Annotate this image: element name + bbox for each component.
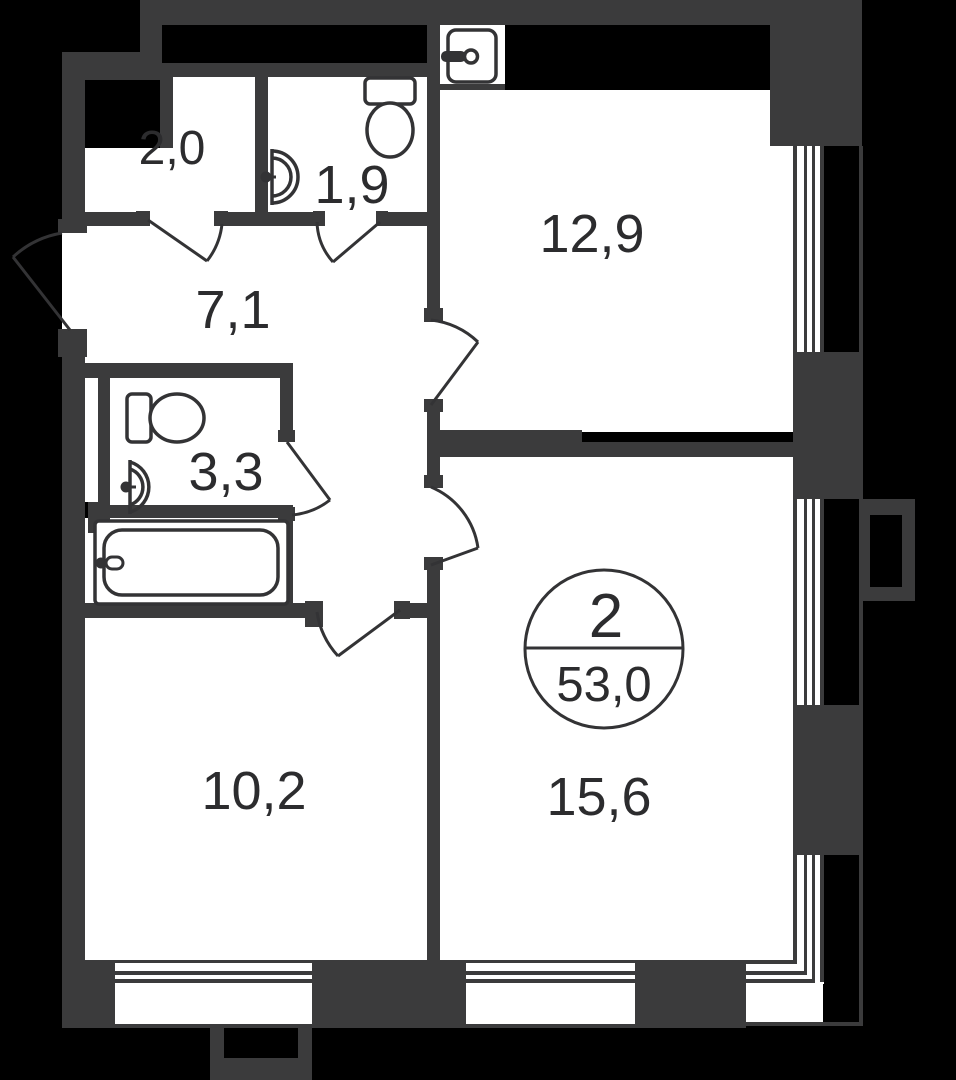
label-kitchen-area: 12,9 — [539, 204, 644, 264]
label-bedroom-area: 10,2 — [201, 761, 306, 821]
area-badge: 2 53,0 — [525, 570, 683, 728]
label-wardrobe-area: 2,0 — [139, 122, 206, 175]
badge-total-area: 53,0 — [556, 658, 651, 712]
floor-plan: 2,0 1,9 12,9 7,1 3,3 10,2 15,6 2 53,0 — [0, 0, 956, 1080]
floor-plan-page: 2,0 1,9 12,9 7,1 3,3 10,2 15,6 2 53,0 — [0, 0, 956, 1080]
label-living-area: 15,6 — [546, 767, 651, 827]
wc-toilet-icon — [365, 78, 415, 157]
label-bathroom-area: 3,3 — [188, 442, 263, 502]
bathroom-toilet-icon — [127, 394, 204, 442]
bathtub-icon — [95, 521, 288, 604]
badge-room-count: 2 — [589, 582, 623, 651]
label-wc-area: 1,9 — [314, 155, 389, 215]
kitchen-sink-icon — [441, 30, 496, 82]
label-hallway-area: 7,1 — [195, 280, 270, 340]
